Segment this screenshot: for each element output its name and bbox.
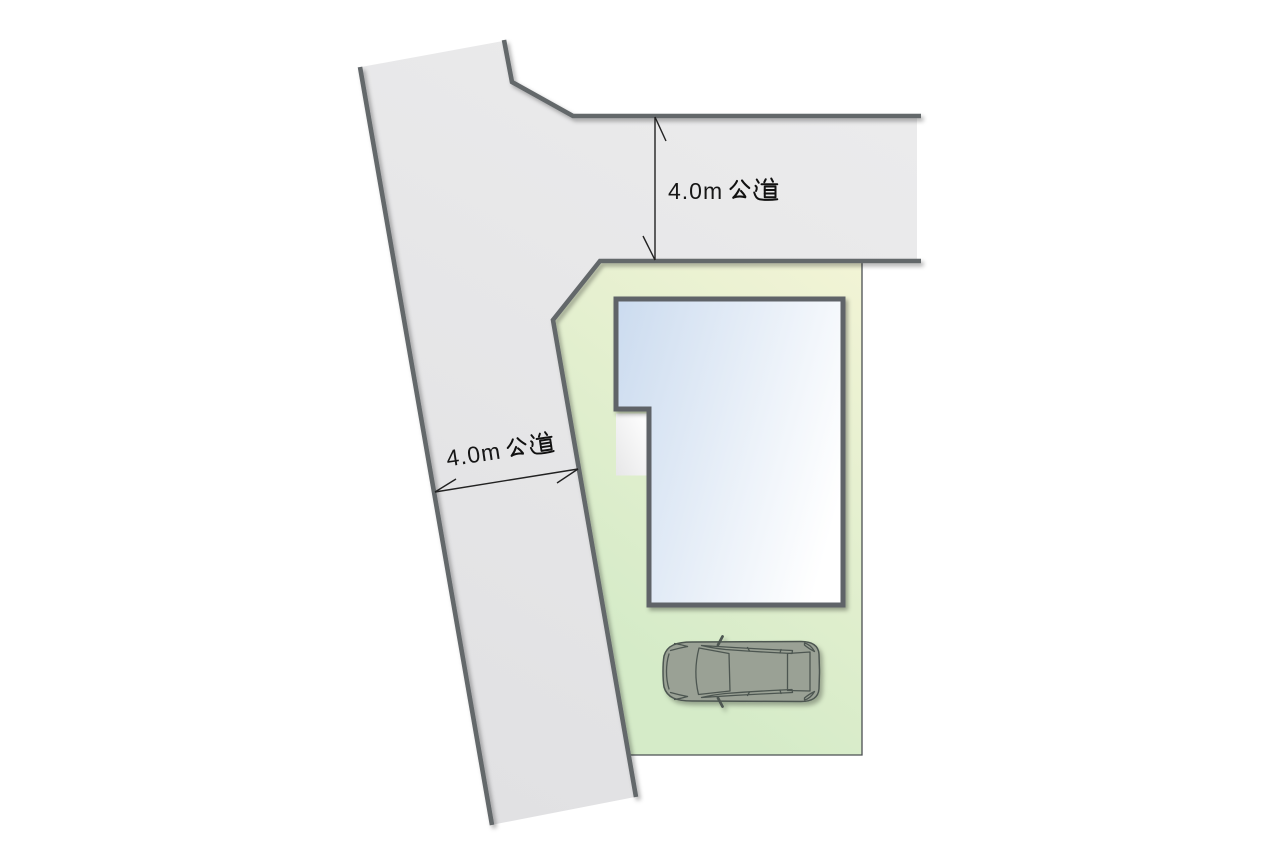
svg-text:4.0m: 4.0m [668,178,723,204]
